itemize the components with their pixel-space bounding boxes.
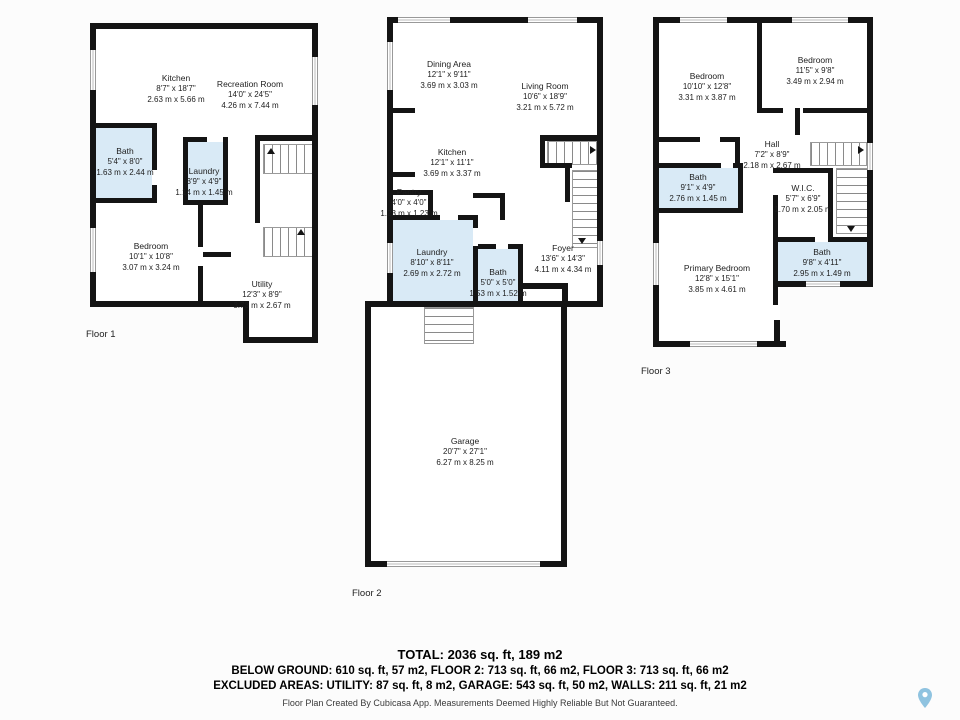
room-size-imperial: 12'3" x 8'9" [233,290,290,301]
stair-arrow-icon [858,146,868,154]
wall-segment [183,200,228,205]
room-name: Garage [436,436,493,447]
wall-segment [243,337,318,343]
stair-arrow-icon [590,146,600,154]
wall-segment [653,17,659,347]
floor-areas-line: BELOW GROUND: 610 sq. ft, 57 m2, FLOOR 2… [0,665,960,677]
staircase [572,170,599,248]
room-size-imperial: 8'7" x 18'7" [147,84,204,95]
room-size-metric: 3.73 m x 2.67 m [233,301,290,312]
room-label: Bath9'1" x 4'9"2.76 m x 1.45 m [669,172,726,204]
room-size-metric: 1.14 m x 1.45 m [175,188,232,199]
room-size-metric: 6.27 m x 8.25 m [436,458,493,469]
window-marker [680,17,727,23]
room-name: Bedroom [786,55,843,66]
room-name: Bath [96,146,153,157]
window-marker [90,50,96,90]
wall-segment [774,320,780,347]
wall-segment [738,163,743,213]
room-size-imperial: 5'4" x 8'0" [96,157,153,168]
room-size-imperial: 12'1" x 11'1" [423,158,480,169]
floor-3-label: Floor 3 [641,366,671,377]
wall-segment [803,108,868,113]
room-size-imperial: 11'5" x 9'8" [786,66,843,77]
room-size-metric: 1.53 m x 1.52 m [469,289,526,300]
wall-segment [720,137,735,142]
wall-segment [203,252,231,257]
room-name: Bath [793,247,850,258]
room-size-imperial: 10'10" x 12'8" [678,82,735,93]
room-label: Bath5'0" x 5'0"1.53 m x 1.52 m [469,267,526,299]
wall-segment [773,237,815,242]
room-size-metric: 2.18 m x 2.67 m [743,161,800,172]
wall-segment [365,301,371,567]
wall-segment [478,244,496,249]
room-size-metric: 1.23 m x 1.23 m [380,209,437,220]
window-marker [597,241,603,265]
room-size-imperial: 10'6" x 18'9" [516,92,573,103]
wall-segment [659,137,700,142]
room-name: Kitchen [423,147,480,158]
room-size-metric: 3.49 m x 2.94 m [786,77,843,88]
room-size-imperial: 3'9" x 4'9" [175,177,232,188]
wall-segment [540,561,567,567]
room-label: Foyer13'6" x 14'3"4.11 m x 4.34 m [535,243,592,275]
wall-segment [90,198,157,203]
stair-arrow-icon [297,225,305,235]
wall-segment [561,301,567,567]
wall-segment [198,203,203,247]
staircase [263,227,314,257]
room-size-metric: 3.85 m x 4.61 m [684,285,750,296]
room-label: Bedroom10'1" x 10'8"3.07 m x 3.24 m [122,241,179,273]
wall-segment [562,283,568,307]
staircase [424,307,474,344]
window-marker [806,281,840,287]
stair-arrow-icon [847,226,855,236]
room-label: Pantry4'0" x 4'0"1.23 m x 1.23 m [380,187,437,219]
wall-segment [90,123,157,128]
room-size-imperial: 7'2" x 8'9" [743,150,800,161]
wall-segment [393,172,415,177]
room-label: Garage20'7" x 27'1"6.27 m x 8.25 m [436,436,493,468]
room-size-imperial: 10'1" x 10'8" [122,252,179,263]
room-label: Bedroom10'10" x 12'8"3.31 m x 3.87 m [678,71,735,103]
room-name: Recreation Room [217,79,283,90]
excluded-areas-line: EXCLUDED AREAS: UTILITY: 87 sq. ft, 8 m2… [0,680,960,692]
room-size-imperial: 12'1" x 9'11" [420,70,477,81]
room-name: Bedroom [122,241,179,252]
wall-segment [255,135,260,223]
room-size-imperial: 4'0" x 4'0" [380,198,437,209]
wall-segment [833,237,867,242]
wall-segment [183,137,207,142]
room-label: W.I.C.5'7" x 6'9"1.70 m x 2.05 m [774,183,831,215]
wall-segment [757,23,762,113]
room-size-metric: 2.95 m x 1.49 m [793,269,850,280]
room-size-imperial: 12'8" x 15'1" [684,274,750,285]
room-size-imperial: 5'7" x 6'9" [774,194,831,205]
room-size-imperial: 14'0" x 24'5" [217,90,283,101]
window-marker [792,17,848,23]
wall-segment [757,108,783,113]
wall-segment [735,137,740,163]
room-name: Kitchen [147,73,204,84]
room-name: Bedroom [678,71,735,82]
room-size-metric: 3.21 m x 5.72 m [516,103,573,114]
total-area-line: TOTAL: 2036 sq. ft, 189 m2 [0,647,960,662]
window-marker [690,341,757,347]
wall-segment [795,108,800,135]
room-label: Bath9'8" x 4'11"2.95 m x 1.49 m [793,247,850,279]
window-marker [90,228,96,272]
floor-1-label: Floor 1 [86,329,116,340]
room-size-metric: 1.70 m x 2.05 m [774,205,831,216]
staircase [836,168,868,234]
room-label: Utility12'3" x 8'9"3.73 m x 2.67 m [233,279,290,311]
room-label: Kitchen12'1" x 11'1"3.69 m x 3.37 m [423,147,480,179]
room-size-metric: 3.31 m x 3.87 m [678,93,735,104]
room-label: Bedroom11'5" x 9'8"3.49 m x 2.94 m [786,55,843,87]
room-size-imperial: 5'0" x 5'0" [469,278,526,289]
wall-segment [540,135,603,141]
wall-segment [473,220,478,228]
room-name: Dining Area [420,59,477,70]
room-size-imperial: 9'8" x 4'11" [793,258,850,269]
window-marker [528,17,577,23]
room-size-imperial: 9'1" x 4'9" [669,183,726,194]
room-size-imperial: 13'6" x 14'3" [535,254,592,265]
room-size-metric: 4.11 m x 4.34 m [535,265,592,276]
room-name: Primary Bedroom [684,263,750,274]
room-size-metric: 4.26 m x 7.44 m [217,101,283,112]
room-label: Bath5'4" x 8'0"1.63 m x 2.44 m [96,146,153,178]
room-label: Kitchen8'7" x 18'7"2.63 m x 5.66 m [147,73,204,105]
room-name: Foyer [535,243,592,254]
room-label: Hall7'2" x 8'9"2.18 m x 2.67 m [743,139,800,171]
room-name: Bath [469,267,526,278]
wall-segment [659,163,721,168]
room-size-metric: 3.69 m x 3.03 m [420,81,477,92]
wall-segment [393,108,415,113]
window-marker [387,561,540,567]
wall-segment [255,135,318,141]
wall-segment [90,301,248,307]
window-marker [398,17,450,23]
window-marker [387,42,393,90]
room-size-imperial: 8'10" x 8'11" [403,258,460,269]
window-marker [387,243,393,273]
room-size-metric: 1.63 m x 2.44 m [96,168,153,179]
room-name: Laundry [175,166,232,177]
room-label: Primary Bedroom12'8" x 15'1"3.85 m x 4.6… [684,263,750,295]
room-label: Laundry3'9" x 4'9"1.14 m x 1.45 m [175,166,232,198]
room-size-metric: 2.63 m x 5.66 m [147,95,204,106]
room-name: Laundry [403,247,460,258]
floor-2-label: Floor 2 [352,588,382,599]
wall-segment [500,193,505,220]
room-name: Bath [669,172,726,183]
wall-segment [565,168,570,202]
room-name: Utility [233,279,290,290]
window-marker [312,57,318,105]
wall-segment [90,23,318,29]
floor-plan-sheet: Kitchen8'7" x 18'7"2.63 m x 5.66 mRecrea… [0,0,960,720]
room-name: W.I.C. [774,183,831,194]
credit-line: Floor Plan Created By Cubicasa App. Meas… [0,698,960,708]
room-size-metric: 3.69 m x 3.37 m [423,169,480,180]
wall-segment [659,208,743,213]
room-size-metric: 2.69 m x 2.72 m [403,269,460,280]
room-size-imperial: 20'7" x 27'1" [436,447,493,458]
room-label: Recreation Room14'0" x 24'5"4.26 m x 7.4… [217,79,283,111]
window-marker [653,243,659,285]
stair-arrow-icon [267,144,275,154]
wall-segment [198,266,203,307]
room-label: Living Room10'6" x 18'9"3.21 m x 5.72 m [516,81,573,113]
room-size-metric: 3.07 m x 3.24 m [122,263,179,274]
wall-segment [365,561,387,567]
room-name: Pantry [380,187,437,198]
room-name: Hall [743,139,800,150]
cubicasa-pin-icon [918,688,932,708]
room-label: Dining Area12'1" x 9'11"3.69 m x 3.03 m [420,59,477,91]
room-name: Living Room [516,81,573,92]
room-label: Laundry8'10" x 8'11"2.69 m x 2.72 m [403,247,460,279]
room-size-metric: 2.76 m x 1.45 m [669,194,726,205]
